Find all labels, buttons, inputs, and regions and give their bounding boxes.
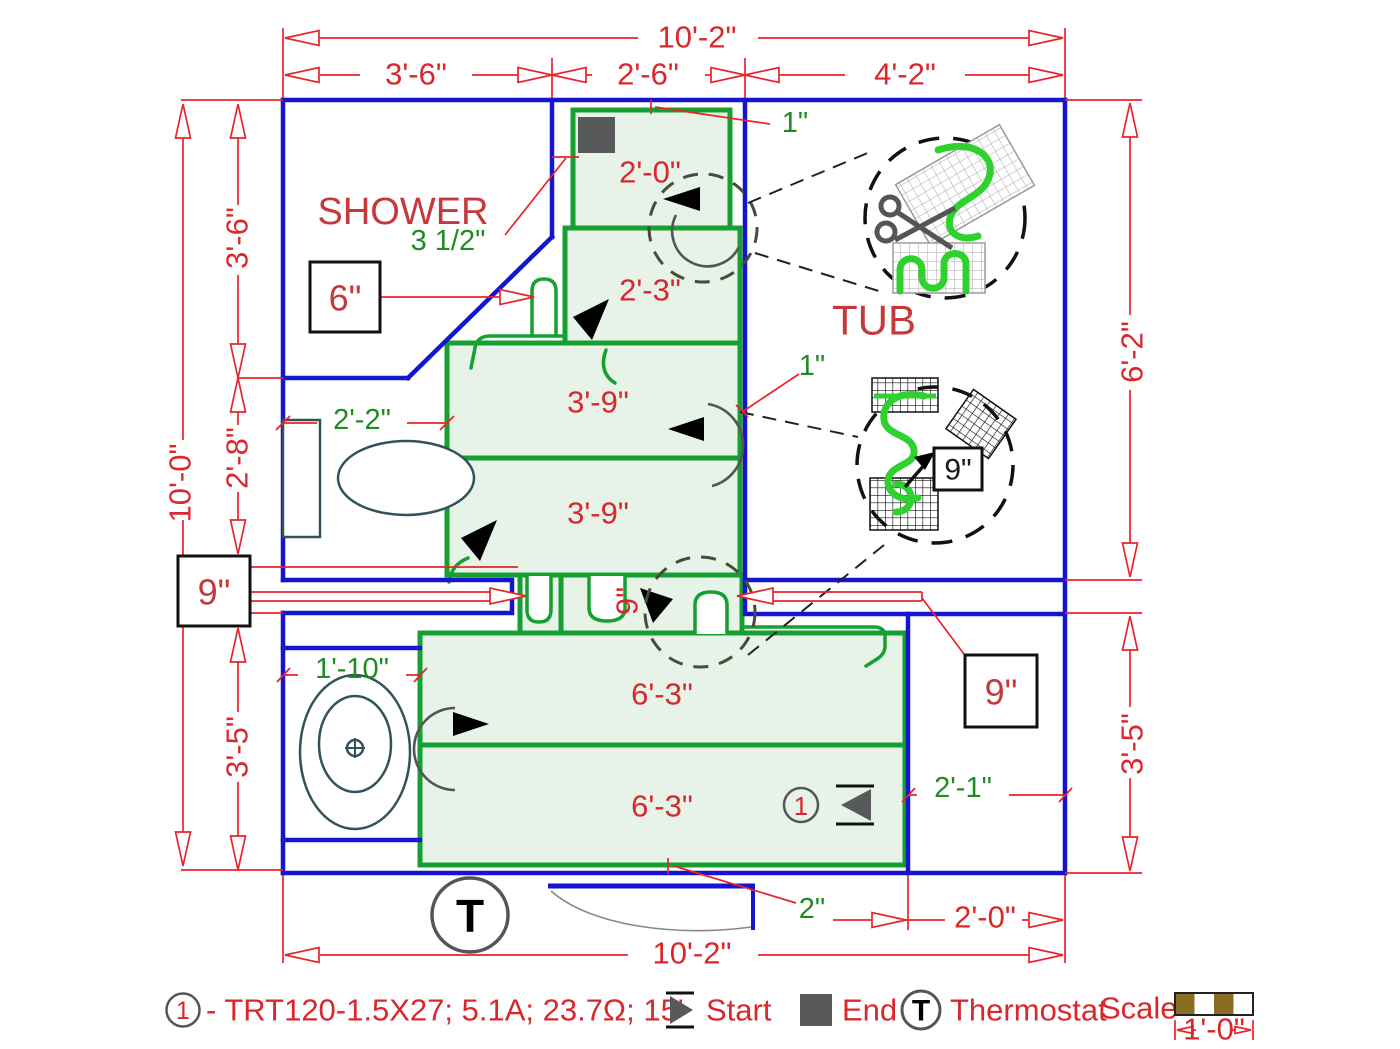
callout-spacing: 3 1/2": [411, 225, 486, 257]
callout-offset-6: 6": [329, 278, 362, 319]
heated-floor-plan: T 1: [0, 0, 1400, 1049]
legend-scale-label: Scale: [1100, 991, 1178, 1026]
dim-top-a: 3'-6": [385, 57, 447, 92]
legend: 1 - TRT120-1.5X27; 5.1A; 23.7Ω; 15' Star…: [167, 991, 1254, 1047]
toilet: [300, 675, 410, 829]
dim-left-b: 2'-8": [220, 427, 255, 489]
heating-mat-sections: [420, 110, 905, 865]
cable-end-marker: [578, 117, 615, 153]
legend-thermostat-icon: T: [902, 991, 940, 1029]
legend-circuit-desc: - TRT120-1.5X27; 5.1A; 23.7Ω; 15': [206, 993, 684, 1028]
mat-label-s5: 6'-3": [631, 677, 693, 712]
callout-edge-top: 1": [782, 107, 808, 139]
dim-bottom-right: 2'-0": [954, 900, 1016, 935]
dim-left-total: 10'-0": [163, 444, 198, 523]
dim-right-a: 6'-2": [1115, 321, 1150, 383]
mat-label-s3: 3'-9": [567, 385, 629, 420]
callout-door: 2": [799, 893, 825, 925]
dim-bottom-total: 10'-2": [653, 936, 732, 971]
dim-top-c: 4'-2": [874, 57, 936, 92]
callout-offset-9-left: 9": [198, 572, 231, 613]
legend-scale-bar: 1'-0": [1175, 993, 1253, 1047]
legend-thermostat-label: Thermostat: [950, 993, 1107, 1028]
detail-nine-inch-label: 9": [944, 454, 971, 487]
mat-label-s2: 2'-3": [619, 273, 681, 308]
door: [548, 886, 755, 931]
dim-top-total: 10'-2": [658, 20, 737, 55]
legend-scale-length: 1'-0": [1183, 1012, 1245, 1047]
legend-end-icon: [800, 994, 832, 1026]
callout-corridor-9: 9": [610, 587, 645, 615]
legend-end-label: End: [842, 993, 897, 1028]
callout-toilet: 1'-10": [315, 653, 389, 685]
mat-label-s6: 6'-3": [631, 789, 693, 824]
dim-right-b: 3'-5": [1115, 713, 1150, 775]
dim-top-b: 2'-6": [617, 57, 679, 92]
callout-vanity: 2'-2": [333, 404, 391, 436]
dim-left-c: 3'-5": [220, 716, 255, 778]
thermostat-plan-letter: T: [456, 890, 484, 942]
callout-edge-mid: 1": [799, 350, 825, 382]
legend-start-label: Start: [706, 993, 772, 1028]
thermostat-plan-symbol: T: [432, 878, 508, 952]
legend-circuit-no: 1: [176, 997, 190, 1025]
mat-label-s1: 2'-0": [619, 155, 681, 190]
room-label-tub: TUB: [832, 297, 916, 344]
dim-left-a: 3'-6": [220, 207, 255, 269]
callout-niche: 2'-1": [934, 772, 992, 804]
mat-label-s4: 3'-9": [567, 496, 629, 531]
floorplan-canvas: T 1: [0, 0, 1400, 1049]
legend-thermostat-letter: T: [912, 995, 930, 1028]
callout-offset-9-right: 9": [985, 672, 1018, 713]
detail-cut-mesh: [865, 125, 1034, 298]
circuit-number: 1: [794, 791, 808, 821]
detail-nine-inch: 9": [857, 378, 1016, 543]
